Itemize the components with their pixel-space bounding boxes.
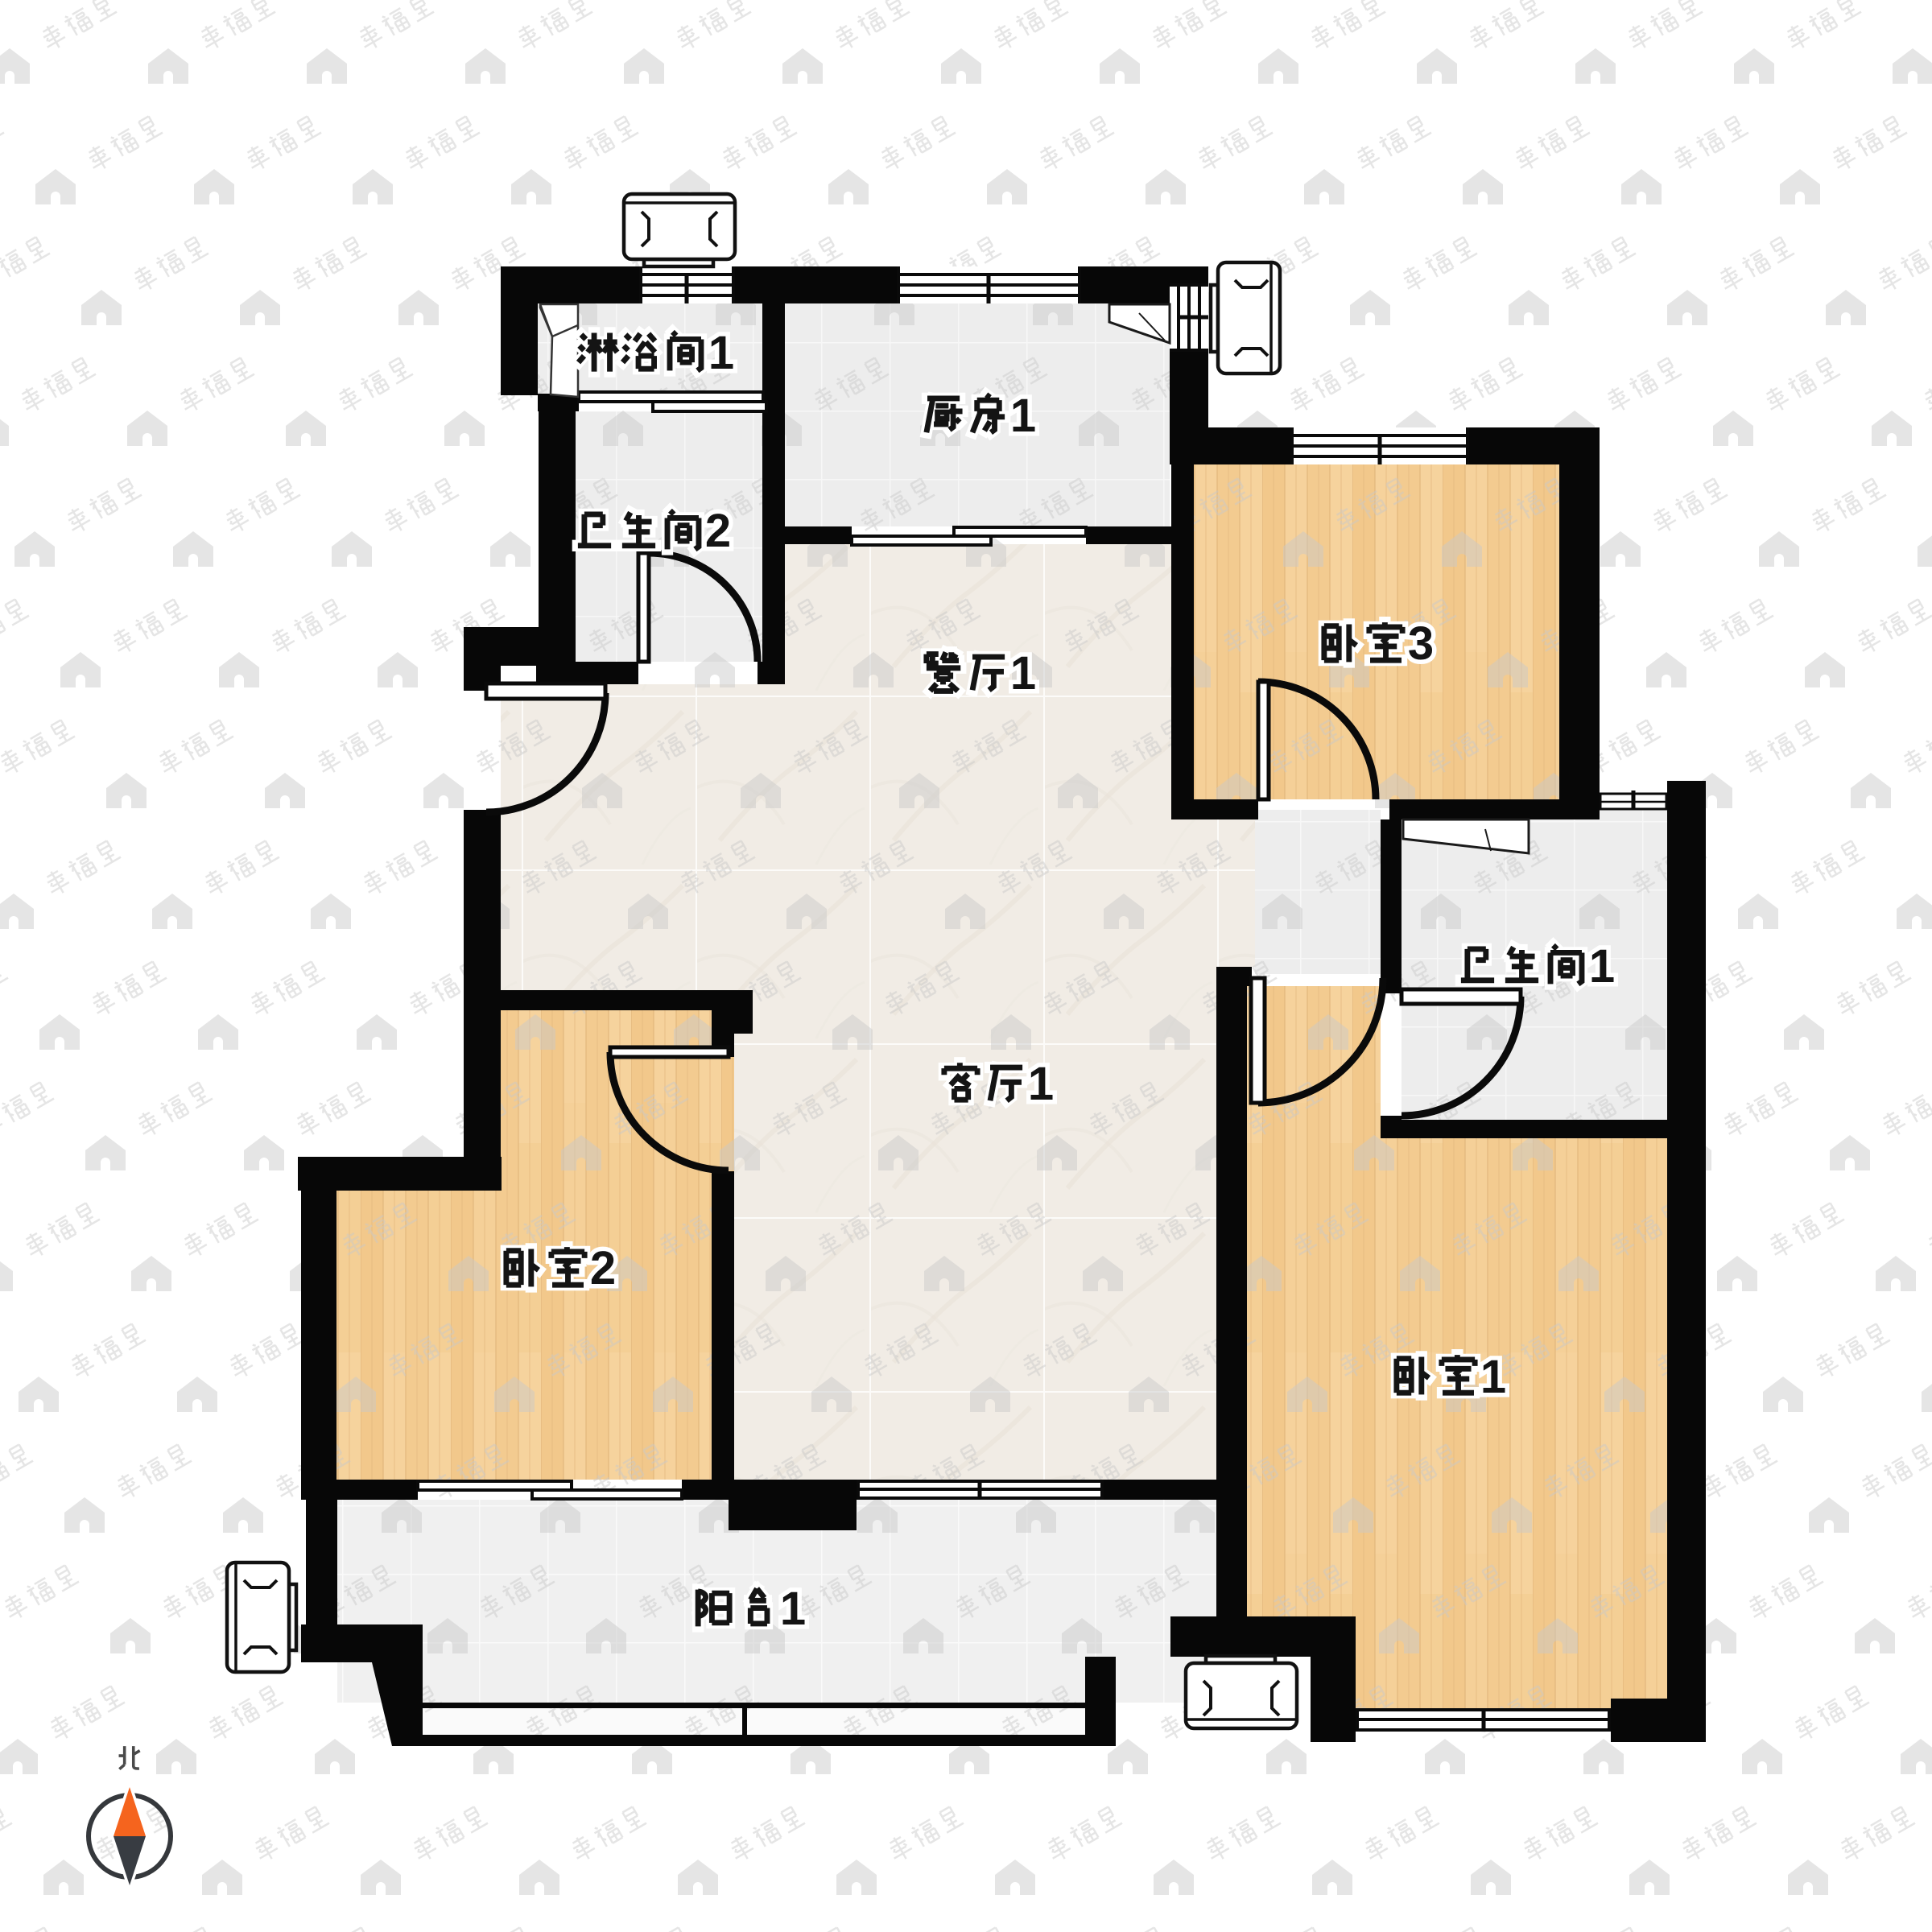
svg-text:1: 1 <box>1010 390 1036 442</box>
svg-text:1: 1 <box>1480 1351 1506 1403</box>
svg-text:3: 3 <box>1408 617 1434 670</box>
svg-text:1: 1 <box>1028 1058 1054 1110</box>
svg-text:1: 1 <box>1589 940 1615 993</box>
svg-text:1: 1 <box>708 327 734 379</box>
svg-text:2: 2 <box>590 1242 616 1294</box>
svg-text:1: 1 <box>780 1583 806 1635</box>
svg-text:2: 2 <box>705 505 731 557</box>
svg-text:1: 1 <box>1010 647 1036 700</box>
